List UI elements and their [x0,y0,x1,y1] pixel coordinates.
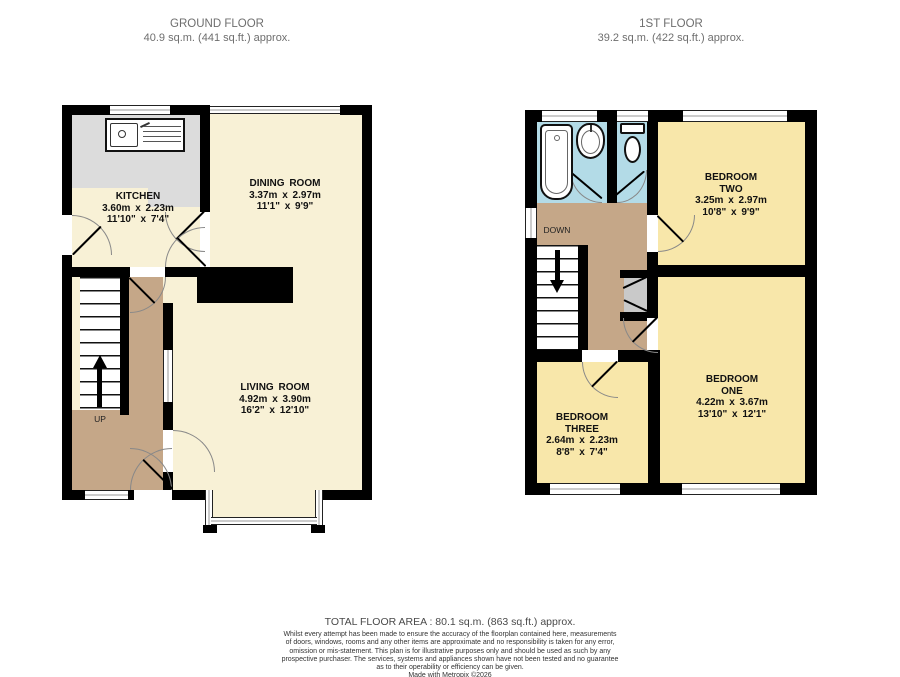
room-name: ONE [662,386,802,398]
room-name: DINING ROOM [215,178,355,190]
bedroom-three-label: BEDROOM THREE 2.64m x 2.23m 8'8" x 7'4" [527,412,637,458]
wall [618,350,648,362]
sink-basin [581,130,600,154]
kitchen-label: KITCHEN 3.60m x 2.23m 11'10" x 7'4" [68,191,208,226]
wall [805,110,817,495]
wall [172,490,205,500]
room-imperial: 13'10" x 12'1" [662,409,802,421]
room-name: BEDROOM [527,412,637,424]
room-name: KITCHEN [68,191,208,203]
bedroom-two-label: BEDROOM TWO 3.25m x 2.97m 10'8" x 9'9" [661,172,801,218]
stairs-up-label: UP [80,414,120,424]
window [85,490,128,500]
wall [120,267,129,415]
room-name: LIVING ROOM [205,382,345,394]
room-metric: 2.64m x 2.23m [527,435,637,447]
bedroom-one-label: BEDROOM ONE 4.22m x 3.67m 13'10" x 12'1" [662,374,802,420]
wall [62,490,85,500]
footer: TOTAL FLOOR AREA : 80.1 sq.m. (863 sq.ft… [170,616,730,677]
wall [780,483,817,495]
credit-line: Made with Metropix ©2026 [170,672,730,677]
window [110,105,170,115]
first-floor-header: 1ST FLOOR 39.2 sq.m. (422 sq.ft.) approx… [525,17,817,45]
room-imperial: 10'8" x 9'9" [661,207,801,219]
toilet-cistern [620,123,645,134]
room-metric: 3.25m x 2.97m [661,195,801,207]
wall [578,245,588,352]
wall [647,122,658,215]
disclaimer-line: omission or mis-statement. This plan is … [170,648,730,656]
wall [620,483,682,495]
first-floor-area: 39.2 sq.m. (422 sq.ft.) approx. [525,31,817,45]
first-floor-plan: DOWN [525,110,817,495]
wall [525,483,550,495]
toilet-bowl [624,136,641,163]
landing-floor [537,203,647,245]
wall [525,350,582,362]
sink-drainer [143,126,181,146]
room-imperial: 11'10" x 7'4" [68,214,208,226]
door-gap [130,267,165,277]
disclaimer-line: Whilst every attempt has been made to en… [170,631,730,639]
wall [62,267,130,277]
window [542,110,597,122]
wall [648,350,660,483]
wall [163,402,173,430]
window [550,483,620,495]
ground-floor-area: 40.9 sq.m. (441 sq.ft.) approx. [62,31,372,45]
room-metric: 3.37m x 2.97m [215,190,355,202]
wall [311,525,325,533]
down-arrow [550,280,564,293]
wall [165,267,197,277]
wall [203,525,217,533]
ground-floor-plan: UP KITCH [62,105,372,538]
ground-floor-title: GROUND FLOOR [62,17,372,31]
disclaimer-line: prospective purchaser. The services, sys… [170,656,730,664]
door-gap [647,215,658,252]
room-name: TWO [661,184,801,196]
room-metric: 4.92m x 3.90m [205,394,345,406]
bathroom-sink [576,123,605,159]
dining-room-label: DINING ROOM 3.37m x 2.97m 11'1" x 9'9" [215,178,355,213]
up-arrow [97,367,102,407]
stairs-down-label: DOWN [535,225,579,235]
kitchen-sink [105,118,185,152]
door-gap [134,490,172,500]
first-floor-title: 1ST FLOOR [525,17,817,31]
window [163,350,173,402]
chimney-breast [197,267,293,303]
down-arrow [555,250,560,280]
total-floor-area: TOTAL FLOOR AREA : 80.1 sq.m. (863 sq.ft… [170,616,730,628]
wall [648,110,683,122]
room-imperial: 16'2" x 12'10" [205,405,345,417]
bathtub [540,124,573,200]
room-name: BEDROOM [662,374,802,386]
living-room-label: LIVING ROOM 4.92m x 3.90m 16'2" x 12'10" [205,382,345,417]
room-imperial: 8'8" x 7'4" [527,447,637,459]
wall [647,265,805,277]
window [617,110,648,122]
wall [647,278,658,318]
wall [597,110,617,122]
room-name: THREE [527,424,637,436]
bay-window-floor [213,490,315,518]
wall [607,122,617,203]
wall [525,110,537,208]
window [683,110,787,122]
wall [163,303,173,350]
room-name: BEDROOM [661,172,801,184]
sink-drain [118,130,126,138]
room-metric: 4.22m x 3.67m [662,397,802,409]
wall [323,490,372,500]
room-imperial: 11'1" x 9'9" [215,201,355,213]
ground-floor-header: GROUND FLOOR 40.9 sq.m. (441 sq.ft.) app… [62,17,372,45]
window [211,517,317,525]
window [210,106,340,114]
window [682,483,780,495]
room-metric: 3.60m x 2.23m [68,203,208,215]
door-gap [582,350,618,362]
bathtub-faucet [554,135,560,141]
wall [62,255,72,500]
sink-faucet [590,125,592,132]
disclaimer-line: of doors, windows, rooms and any other i… [170,639,730,647]
wall [362,105,372,500]
